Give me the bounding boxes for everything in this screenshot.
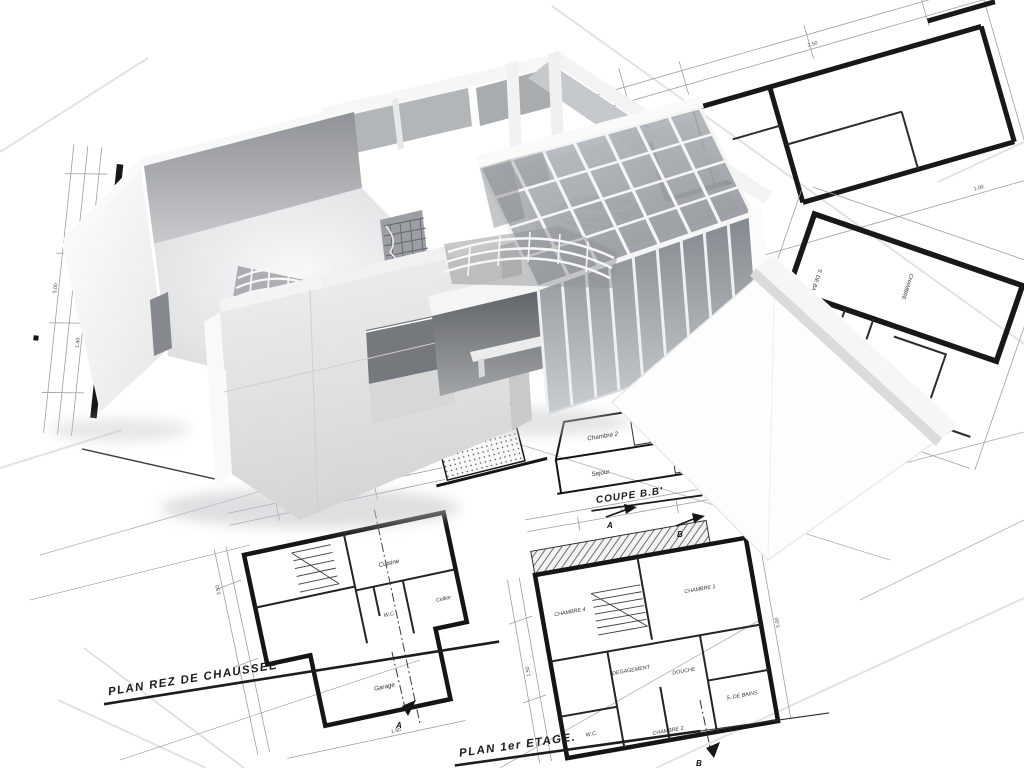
room-label: Cellier xyxy=(436,595,452,604)
stair-hatch xyxy=(591,585,648,635)
room-label: CHAMBRE xyxy=(900,273,915,301)
bench-leg xyxy=(478,358,485,378)
dimension-label: 5.00 xyxy=(774,617,782,628)
room-label: S. DE BAINS xyxy=(726,690,759,701)
dimension-label: 1.80 xyxy=(75,337,82,348)
wall-light xyxy=(244,512,467,664)
axis-label: A xyxy=(395,721,402,730)
room-label: CHAMBRE 1 xyxy=(684,584,716,595)
axis-label: B xyxy=(696,759,702,768)
dimension-label: 3.50 xyxy=(215,584,223,595)
axis-label: B xyxy=(677,530,683,539)
title-underline-thin xyxy=(700,713,829,731)
room-label: W.C. xyxy=(585,731,598,739)
title-underline xyxy=(104,642,499,705)
first-floor-title: PLAN 1er ETAGE. xyxy=(452,696,829,765)
room-label: CHAMBRE 4 xyxy=(554,607,586,618)
stair-hatch xyxy=(292,545,339,592)
shadow xyxy=(50,418,190,442)
house-model xyxy=(62,50,958,560)
room-label: Sejour xyxy=(591,468,611,478)
render-canvas: 5.00 1.50 1.80 2.50 1.00 CHAMBRE S. DE B… xyxy=(0,0,1024,768)
section-title: COUPE B.B' xyxy=(589,480,702,510)
ground-floor-axis-marker: A xyxy=(392,652,416,730)
plan-title: PLAN REZ DE CHAUSSEE xyxy=(107,660,279,699)
room-label: DEGAGEMENT xyxy=(612,664,651,677)
axis-square-marker xyxy=(33,335,38,340)
room-label: W.C. xyxy=(383,611,396,619)
room-label: Garage xyxy=(374,681,396,692)
dimension-label: 5.00 xyxy=(52,283,59,294)
axis-label: A xyxy=(606,521,613,530)
architectural-render: 5.00 1.50 1.80 2.50 1.00 CHAMBRE S. DE B… xyxy=(0,0,1024,768)
room-label: Cuisine xyxy=(378,558,400,569)
section-axis-line xyxy=(374,510,420,725)
dimension-label: 1.50 xyxy=(525,666,533,677)
plan-title: COUPE B.B' xyxy=(595,486,664,506)
dimension-label: 1.00 xyxy=(973,184,984,193)
